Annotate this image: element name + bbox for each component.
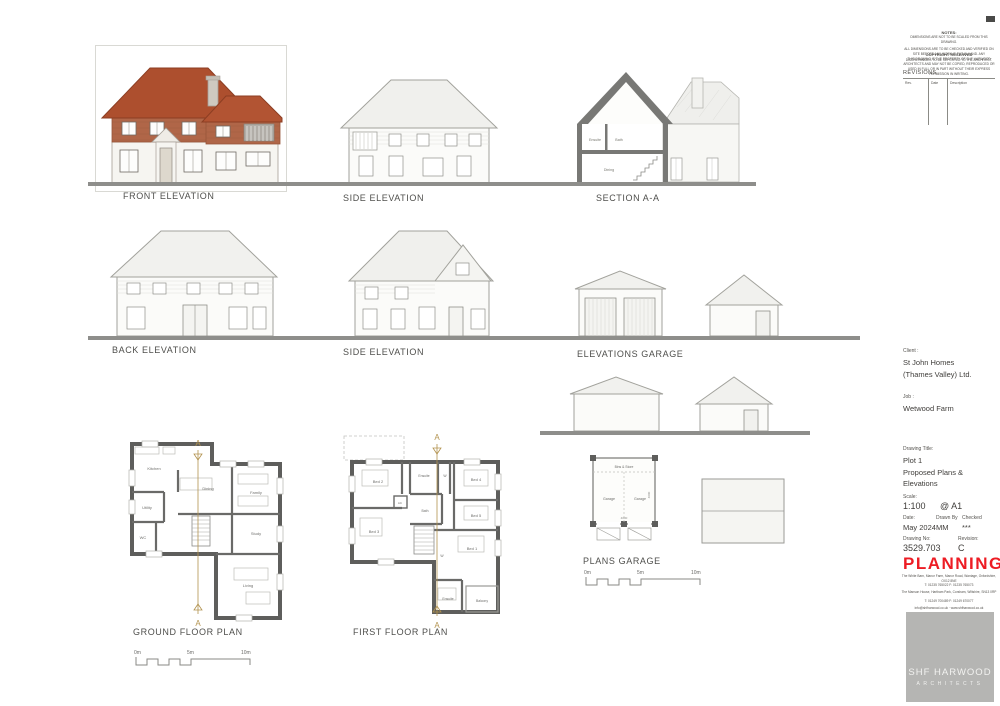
room-label-family: Family (250, 490, 262, 495)
section-room-ensuite: Ensuite (589, 138, 601, 142)
section-aa-drawing: Ensuite Bath Dining (573, 62, 758, 183)
section-room-dining: Dining (604, 168, 614, 172)
room-label-kitchen: Kitchen (147, 466, 160, 471)
office2-address: The Manson House, Hartham Park, Corsham,… (901, 590, 997, 595)
scale-0m: 0m (584, 570, 591, 576)
balcony (353, 132, 377, 150)
side-elevation-mid-drawing (343, 219, 501, 337)
scale-value: 1:100 (903, 501, 926, 511)
job-name: Wetwood Farm (903, 403, 995, 415)
client-name-2: (Thames Valley) Ltd. (903, 369, 995, 381)
scale-sheet: @ A1 (940, 501, 962, 511)
client-name-1: St John Homes (903, 357, 995, 369)
side-elevation-top-drawing (333, 70, 503, 184)
garage-side-door (756, 311, 770, 336)
room-label-ensuite-top: Ensuite (418, 474, 429, 478)
room-label-ensuite-bottom: Ensuite (442, 597, 453, 601)
elevations-garage-label: ELEVATIONS GARAGE (577, 349, 683, 359)
job-label: Job : (903, 394, 995, 400)
planning-stamp: PLANNING (903, 554, 1000, 574)
date-label: Date: (903, 515, 915, 521)
notes-line1: DIMENSIONS ARE NOT TO BE SCALED FROM THI… (903, 35, 995, 45)
scale-10m: 10m (691, 570, 701, 576)
revision-label: Revision: (958, 536, 979, 542)
ground-floor-plan-svg: A A Kitchen Dining Family Utility WC Stu… (116, 434, 294, 630)
ff-section-marker-top: A (434, 433, 440, 442)
revisions-divider-1 (928, 79, 929, 125)
back-elevation-label: BACK ELEVATION (112, 345, 197, 355)
side-elevation-top-label: SIDE ELEVATION (343, 193, 424, 203)
first-floor-plan-label: FIRST FLOOR PLAN (353, 627, 448, 637)
section-aa-svg: Ensuite Bath Dining (573, 62, 758, 183)
garage-dim-depth: 4000 (647, 491, 651, 498)
scale-5m: 5m (187, 650, 194, 656)
section-room-bath: Bath (615, 138, 622, 142)
revisions-divider-2 (947, 79, 948, 125)
chimney (208, 78, 218, 106)
room-label-utility: Utility (142, 505, 152, 510)
ff-outer-walls (352, 462, 498, 612)
client-block: Client : St John Homes (Thames Valley) L… (903, 348, 995, 380)
ground-line-row3 (540, 431, 810, 435)
architect-logo: SHF HARWOOD ARCHITECTS (906, 612, 994, 702)
room-label-garage-left: Garage (603, 497, 615, 501)
checked-value: *** (962, 522, 971, 534)
garage-rear-svg (568, 372, 665, 432)
logo-line1: SHF HARWOOD (906, 667, 994, 678)
front-elevation-svg (96, 46, 286, 191)
ground-floor-scale-bar-svg: 0m 5m 10m (133, 648, 259, 670)
garage-side2-svg (690, 372, 778, 432)
garage-scale-bar-svg: 0m 5m 10m (583, 568, 709, 590)
revisions-col-date: Date (931, 81, 938, 85)
side-elevation-mid-label: SIDE ELEVATION (343, 347, 424, 357)
room-label-study: Study (251, 531, 261, 536)
room-label-garage-right: Garage (634, 497, 646, 501)
room-label-bed2: Bed 2 (373, 479, 384, 484)
revisions-table: Rev. Date Description (903, 78, 995, 125)
client-label: Client : (903, 348, 995, 354)
front-elevation-drawing (95, 45, 287, 192)
section-cut-elements (577, 72, 673, 182)
room-label-balcony: Balcony (476, 599, 488, 603)
garage-side-elevation (700, 267, 788, 337)
front-elevation-house (102, 68, 282, 184)
side-elevation-mid-svg (343, 219, 501, 337)
first-floor-plan-drawing: A A Bed 2 Ensuite W Bed 4 Bath AC Bed 3 … (338, 430, 510, 630)
ground-floor-scale-bar: 0m 5m 10m (133, 648, 259, 670)
drawing-title-label: Drawing Title: (903, 446, 995, 452)
scale-5m: 5m (637, 570, 644, 576)
revisions-col-description: Description (950, 81, 967, 85)
ground-floor-plan-label: GROUND FLOOR PLAN (133, 627, 243, 637)
drawing-title-3: Elevations (903, 478, 995, 490)
logo-line2: ARCHITECTS (906, 681, 994, 687)
garage-front-svg (573, 265, 668, 337)
section-background-house (663, 78, 739, 182)
corner-mark (986, 16, 995, 22)
room-label-wc: WC (140, 535, 147, 540)
drawing-sheet: Ensuite Bath Dining FRONT ELEVATION SIDE… (0, 0, 1000, 706)
ground-line-row2 (88, 336, 860, 340)
scale-label: Scale: (903, 494, 995, 500)
drawn-by-value: MM (936, 522, 949, 534)
revisions-title: REVISIONS (903, 70, 995, 76)
revisions-col-rev: Rev. (905, 81, 912, 85)
room-label-living: Living (243, 583, 253, 588)
ff-roof-outline (344, 436, 404, 460)
revision-value: C (958, 543, 965, 553)
drawn-by-label: Drawn By (936, 515, 958, 521)
scale-10m: 10m (241, 650, 251, 656)
garage-roof-plan-svg (700, 477, 786, 547)
plans-garage-label: PLANS GARAGE (583, 556, 661, 566)
back-elevation-drawing (103, 223, 285, 337)
room-label-bins-store: Bins & Store (615, 465, 634, 469)
drawing-no-label: Drawing No: (903, 536, 931, 542)
job-block: Job : Wetwood Farm (903, 394, 995, 415)
section-chimney (692, 78, 703, 108)
drawing-title-2: Proposed Plans & (903, 467, 995, 479)
ground-floor-plan-drawing: A A Kitchen Dining Family Utility WC Stu… (116, 434, 294, 630)
garage-side2-door (744, 410, 758, 431)
garage-rear-elevation (568, 372, 665, 432)
office2-phone: T: 01249 700489 F: 01249 670077 (901, 599, 997, 604)
garage-roof-plan-drawing (700, 477, 786, 547)
ground-line-row1 (88, 182, 756, 186)
checked-label: Checked (962, 515, 982, 521)
first-floor-plan-svg: A A Bed 2 Ensuite W Bed 4 Bath AC Bed 3 … (338, 430, 510, 630)
room-label-bed1: Bed 1 (467, 546, 478, 551)
room-label-bath: Bath (422, 509, 429, 513)
scale-0m: 0m (134, 650, 141, 656)
date-value: May 2024 (903, 522, 936, 534)
room-label-bed5: Bed 5 (471, 513, 482, 518)
side-door (449, 307, 463, 336)
email-web: info@shfharwood.co.uk · www.shfharwood.c… (901, 606, 997, 611)
garage-plan-svg: Bins & Store Garage Garage 4000 4000 (583, 450, 665, 558)
room-label-dining: Dining (202, 486, 213, 491)
section-aa-label: SECTION A-A (596, 193, 660, 203)
garage-side-svg (700, 267, 788, 337)
front-door (160, 148, 172, 184)
garage-side2-elevation (690, 372, 778, 432)
garage-front-elevation (573, 265, 668, 337)
drawing-title-block: Drawing Title: Plot 1 Proposed Plans & E… (903, 446, 995, 490)
garage-plan-drawing: Bins & Store Garage Garage 4000 4000 (583, 450, 665, 558)
gf-section-marker-top: A (195, 439, 201, 448)
drawing-title-1: Plot 1 (903, 455, 995, 467)
room-label-bed3: Bed 3 (369, 529, 380, 534)
office1-phone: T: 01235 765022 F: 01235 765073 (901, 583, 997, 588)
garage-scale-bar: 0m 5m 10m (583, 568, 709, 590)
side-elevation-top-svg (333, 70, 503, 184)
drawing-no-value: 3529.703 (903, 543, 941, 553)
garage-door-leafs (597, 528, 651, 540)
room-label-bed4: Bed 4 (471, 477, 482, 482)
front-elevation-label: FRONT ELEVATION (123, 191, 215, 201)
section-stairs (633, 156, 657, 180)
back-elevation-svg (103, 223, 285, 337)
garage-dim-width: 4000 (621, 516, 628, 520)
